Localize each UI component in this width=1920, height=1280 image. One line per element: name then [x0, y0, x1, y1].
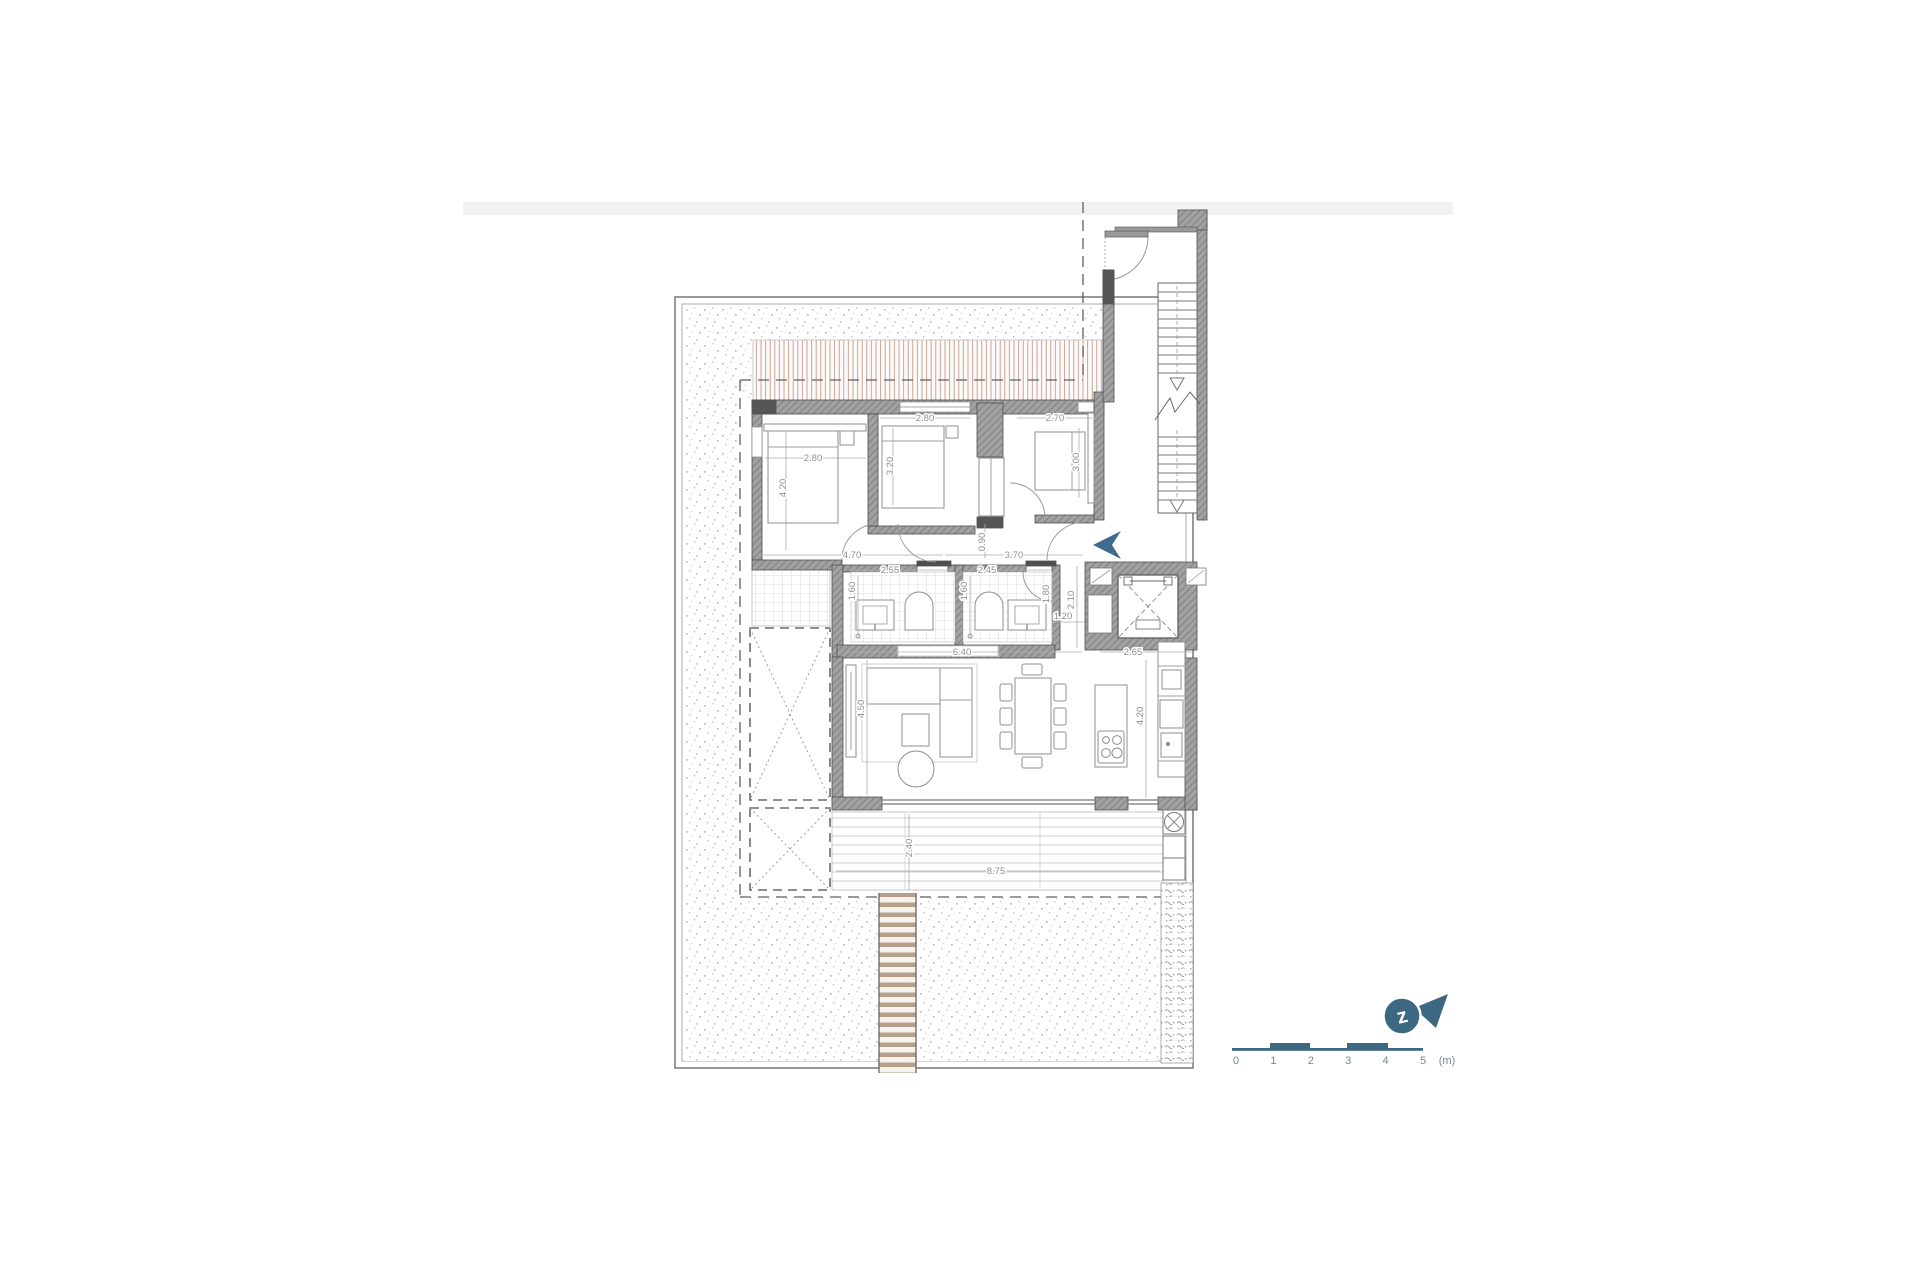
- dimension-label: 1.80: [1041, 585, 1052, 604]
- dimension-label: 2.55: [881, 565, 900, 576]
- dimension-label: 3.20: [885, 457, 896, 476]
- bed-icon: [768, 431, 838, 523]
- dimension-label: 1.20: [1054, 611, 1073, 622]
- wardrobe-icon: [764, 424, 866, 431]
- scale-tick-label: 0: [1233, 1055, 1239, 1067]
- fridge-icon: [1160, 700, 1183, 728]
- terrace-service-boxes: [1163, 810, 1185, 880]
- sink-icon: [1008, 600, 1046, 630]
- coffee-table-icon: [902, 714, 929, 746]
- elevator-shaft: [1085, 562, 1206, 650]
- dimension-label: 4.20: [1135, 707, 1146, 726]
- scale-tick-label: 3: [1345, 1055, 1351, 1067]
- dimension-label: 0.90: [977, 533, 988, 552]
- toilet-icon: [975, 592, 1003, 630]
- sofa-icon: [867, 668, 940, 704]
- dimension-label: 2.40: [904, 839, 915, 858]
- dimension-label: 4.50: [856, 700, 867, 719]
- toilet-icon: [905, 592, 933, 630]
- nightstand-icon: [946, 426, 958, 438]
- bedroom-3: [1035, 413, 1094, 503]
- kitchen-sink-icon: [1161, 733, 1182, 757]
- dimension-label: 2.45: [978, 565, 997, 576]
- dimension-label: 1.60: [959, 582, 970, 601]
- dining-area: [1000, 664, 1066, 768]
- scale-bar: 012345(m): [1232, 1043, 1455, 1067]
- bathroom-1: [851, 572, 955, 642]
- scale-tick-label: 2: [1308, 1055, 1314, 1067]
- top-gray-strip: [463, 202, 1453, 215]
- wardrobe-icon: [1088, 413, 1094, 503]
- roof-canopy: [753, 340, 1104, 400]
- scale-tick-label: 5: [1420, 1055, 1426, 1067]
- dimension-label: 1.60: [847, 582, 858, 601]
- dimension-label: 4.70: [843, 550, 862, 561]
- dimension-label: 2.80: [916, 413, 935, 424]
- bedroom-1: [764, 424, 866, 523]
- north-arrow-icon: z: [1384, 994, 1449, 1035]
- floor-plan-drawing: 2.804.202.803.202.703.000.904.703.702.55…: [0, 0, 1920, 1280]
- dining-table-icon: [1015, 678, 1051, 754]
- terrace-deck: [832, 812, 1163, 890]
- pergola-grid-upper: [750, 628, 830, 800]
- dimension-label: 4.20: [778, 479, 789, 498]
- scale-tick-label: 4: [1383, 1055, 1389, 1067]
- dimension-label: 2.65: [1124, 647, 1143, 658]
- sofa-icon: [940, 668, 972, 757]
- kitchen-counter: [1158, 642, 1185, 777]
- bathroom-2: [963, 572, 1052, 642]
- living-room: [846, 646, 998, 787]
- dimension-label: 3.00: [1071, 453, 1082, 472]
- dimension-label: 8.75: [987, 866, 1006, 877]
- pergola-grid-lower: [750, 808, 830, 890]
- lightwell-deck: [752, 568, 830, 626]
- hob-icon: [1098, 731, 1124, 763]
- dimension-label: 2.80: [804, 453, 823, 464]
- scale-unit-label: (m): [1439, 1055, 1456, 1067]
- garden-path: [879, 893, 916, 1073]
- dimension-label: 2.70: [1046, 413, 1065, 424]
- floor-plan-page: 2.804.202.803.202.703.000.904.703.702.55…: [0, 0, 1920, 1280]
- ceiling-beam: [898, 646, 998, 656]
- entry-arrow-icon: [1093, 531, 1121, 559]
- dimension-label: 2.10: [1066, 591, 1077, 610]
- dimension-label: 3.70: [1005, 550, 1024, 561]
- stone-border: [1161, 883, 1193, 1063]
- dimension-label: 6.40: [953, 647, 972, 658]
- sink-icon: [856, 600, 894, 630]
- scale-tick-label: 1: [1270, 1055, 1276, 1067]
- pouf-icon: [898, 751, 934, 787]
- oven-icon: [1162, 670, 1181, 689]
- staircase: [1115, 210, 1207, 520]
- nightstand-icon: [840, 431, 854, 445]
